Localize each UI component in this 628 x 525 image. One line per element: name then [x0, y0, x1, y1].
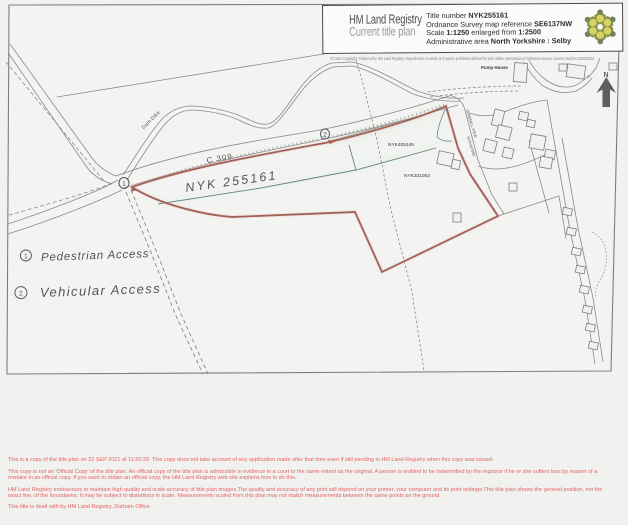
- svg-text:1: 1: [122, 181, 126, 188]
- svg-text:2: 2: [323, 132, 327, 139]
- svg-text:1: 1: [24, 253, 28, 260]
- svg-text:Pump House: Pump House: [481, 65, 508, 70]
- svg-text:2: 2: [19, 291, 23, 298]
- svg-text:NYK321063: NYK321063: [404, 173, 430, 179]
- svg-text:NYK405145: NYK405145: [388, 142, 414, 148]
